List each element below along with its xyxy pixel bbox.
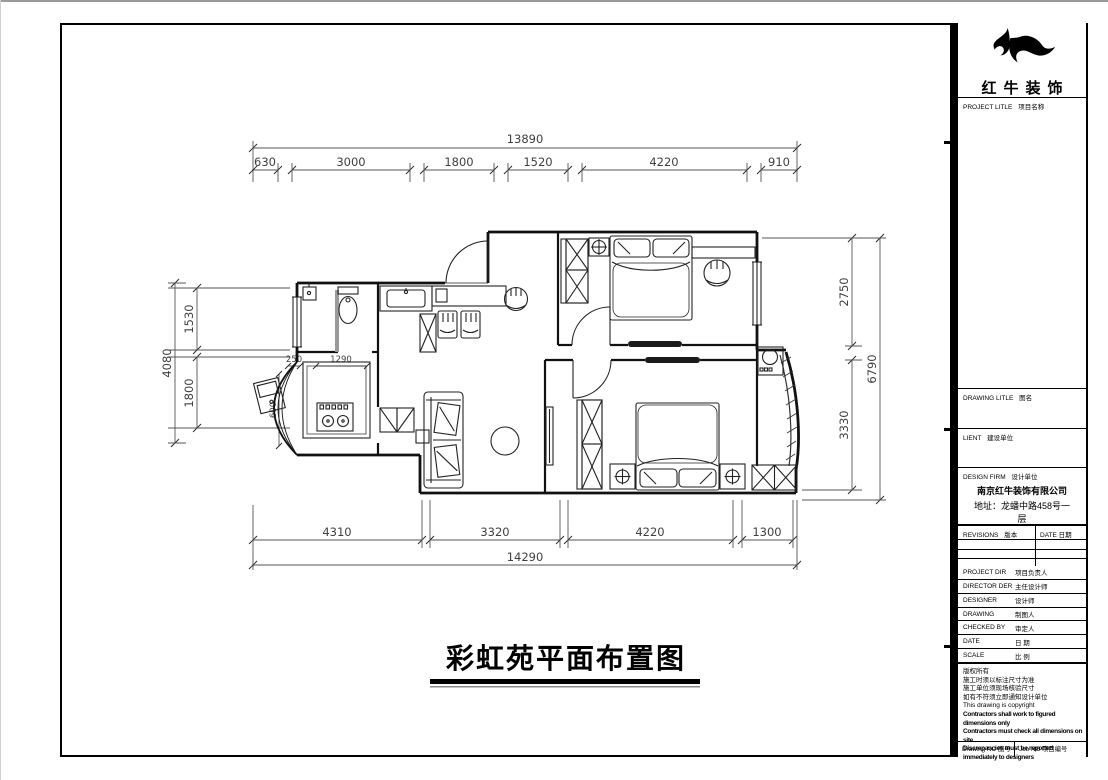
staff-label-cn: 制图人 xyxy=(1015,609,1035,619)
tv-panel xyxy=(546,407,553,465)
dim-right-seg: 3330 xyxy=(837,410,851,439)
dimension-labels: 13890 630 3000 1800 1520 4220 910 4310 3… xyxy=(160,132,879,564)
kitchen-counter xyxy=(303,362,370,438)
desk-and-chair xyxy=(692,247,755,286)
staff-label-cn: 设计师 xyxy=(1015,595,1035,605)
staff-rows-section: PROJECT DIR 项目负责人 DIRECTOR DER 主任设计师 DES… xyxy=(958,566,1086,662)
note-line: 版权所有 xyxy=(963,668,1084,677)
dim-left-overall: 4080 xyxy=(160,348,174,377)
round-table xyxy=(491,427,519,455)
job-no-label-en: Job NO xyxy=(1019,746,1040,753)
dim-inner-offset: 250 xyxy=(286,355,302,365)
ceiling-lamp-symbol xyxy=(589,238,609,256)
note-line: 如有不符须立即通知设计单位 xyxy=(963,694,1084,703)
dim-top-seg: 3000 xyxy=(336,155,365,169)
drawing-no-label-en: Drawing NO xyxy=(962,746,996,753)
staff-label-en: DRAWING xyxy=(958,611,1015,618)
dim-left-seg: 1800 xyxy=(182,378,196,407)
dim-top-overall: 13890 xyxy=(507,132,544,146)
staff-row: DESIGNER 设计师 xyxy=(958,593,1086,607)
red-bull-logo-icon xyxy=(986,26,1058,76)
staff-label-cn: 主任设计师 xyxy=(1015,581,1048,591)
dim-left-seg: 1530 xyxy=(182,304,196,333)
dim-right-overall: 6790 xyxy=(865,354,879,383)
staff-row: DIRECTOR DER 主任设计师 xyxy=(958,579,1086,593)
note-line: 施工单位须现场核验尺寸 xyxy=(963,685,1084,694)
project-label-en: PROJECT LITLE xyxy=(963,104,1012,111)
dining-set xyxy=(432,286,528,338)
drawing-label-en: DRAWING LITLE xyxy=(963,395,1013,402)
revisions-section: REVISIONS 版本 DATE 日期 xyxy=(958,524,1086,566)
dim-inner-counter: 1290 xyxy=(330,355,352,365)
nightstand xyxy=(720,464,745,489)
revisions-row-line xyxy=(958,539,1086,540)
staff-label-cn: 日 期 xyxy=(1015,637,1030,647)
staff-label-cn: 比 例 xyxy=(1015,651,1030,661)
bathroom-fixtures xyxy=(303,283,358,324)
staff-label-en: DESIGNER xyxy=(958,597,1015,604)
revisions-row-line xyxy=(958,558,1086,559)
drawing-label-cn: 图名 xyxy=(1019,395,1032,402)
copyright-notes: 版权所有 施工时须以标注尺寸为准 施工单位须现场核验尺寸 如有不符须立即通知设计… xyxy=(958,662,1086,741)
dining-chair xyxy=(461,311,480,338)
bar-stool xyxy=(505,288,528,311)
dim-bottom-seg: 1300 xyxy=(752,525,781,539)
rev-date-label-cn: 日期 xyxy=(1059,532,1072,539)
staff-label-cn: 项目负责人 xyxy=(1015,567,1048,577)
washbasin xyxy=(380,286,432,311)
dim-bottom-overall: 14290 xyxy=(507,550,544,564)
staff-row: PROJECT DIR 项目负责人 xyxy=(958,566,1086,579)
dim-bottom-seg: 3320 xyxy=(480,525,509,539)
brand-name: 红牛装饰 xyxy=(958,81,1086,97)
staff-label-cn: 审定人 xyxy=(1015,623,1035,633)
staff-row: DRAWING 制图人 xyxy=(958,607,1086,621)
stove xyxy=(317,403,353,431)
note-line: This drawing is copyright xyxy=(963,702,1084,711)
title-underline-shadow xyxy=(430,686,700,688)
staff-label-en: DIRECTOR DER xyxy=(958,583,1015,590)
company-address: 地址：龙蟠中路458号一 xyxy=(958,499,1086,512)
rev-date-label-en: DATE xyxy=(1040,532,1057,539)
client-label-cn: 建设单位 xyxy=(987,435,1013,442)
balcony-closet xyxy=(752,465,797,490)
company-name: 南京红牛装饰有限公司 xyxy=(958,484,1086,497)
dim-top-seg: 1800 xyxy=(444,155,473,169)
logo-section: 红牛装饰 xyxy=(958,23,1086,97)
job-no-label-cn: 项目编号 xyxy=(1042,746,1067,753)
bed-double xyxy=(636,403,719,490)
dim-bottom-seg: 4310 xyxy=(322,525,351,539)
revisions-row-line xyxy=(958,549,1086,550)
bedroom1-wardrobe xyxy=(561,239,588,303)
revisions-label-en: REVISIONS xyxy=(963,532,998,539)
project-title-section: PROJECT LITLE 项目名称 xyxy=(958,97,1086,388)
project-label-cn: 项目名称 xyxy=(1018,104,1044,111)
column-hatch xyxy=(420,314,436,352)
staff-row: DATE 日 期 xyxy=(958,634,1086,648)
client-section: LIENT 建设单位 xyxy=(958,428,1086,467)
dim-top-seg: 910 xyxy=(768,155,790,169)
staff-row: CHECKED BY 审定人 xyxy=(958,620,1086,634)
sofa xyxy=(424,392,463,488)
plan-title: 彩虹苑平面布置图 xyxy=(430,643,700,688)
plan-title-text: 彩虹苑平面布置图 xyxy=(446,643,686,674)
firm-label-en: DESIGN FIRM xyxy=(963,474,1006,481)
walls-outer xyxy=(297,232,799,493)
drawing-sheet: 13890 630 3000 1800 1520 4220 910 4310 3… xyxy=(0,0,1108,780)
staff-label-en: CHECKED BY xyxy=(958,624,1015,631)
bed-double xyxy=(610,236,692,320)
dimension-chains xyxy=(168,141,886,570)
drawing-number-section: Drawing NO 图号 Job NO 项目编号 xyxy=(958,741,1086,757)
staff-label-en: DATE xyxy=(958,638,1015,645)
nightstand xyxy=(610,464,635,489)
title-block: 红牛装饰 PROJECT LITLE 项目名称 DRAWING LITLE 图名… xyxy=(958,23,1088,757)
design-firm-section: DESIGN FIRM 设计单位 南京红牛装饰有限公司 地址：龙蟠中路458号一… xyxy=(958,467,1086,524)
revisions-label-cn: 版本 xyxy=(1004,532,1017,539)
note-line: Contractors shall work to figured dimens… xyxy=(963,711,1084,728)
dim-top-seg: 4220 xyxy=(649,155,678,169)
title-underline xyxy=(430,679,700,684)
drawing-title-section: DRAWING LITLE 图名 xyxy=(958,388,1086,428)
hall-cabinets xyxy=(380,408,429,443)
dim-right-seg: 2750 xyxy=(837,277,851,306)
dim-top-seg: 1520 xyxy=(523,155,552,169)
staff-label-en: SCALE xyxy=(958,652,1015,659)
drawing-no-label-cn: 图号 xyxy=(998,746,1011,753)
dim-bottom-seg: 4220 xyxy=(635,525,664,539)
dining-chair xyxy=(438,311,457,338)
floor-plan-drawing: 13890 630 3000 1800 1520 4220 910 4310 3… xyxy=(0,0,1108,780)
revisions-divider xyxy=(1035,526,1036,566)
dim-top-seg: 630 xyxy=(254,155,276,169)
firm-label-cn: 设计单位 xyxy=(1011,474,1037,481)
note-line: 施工时须以标注尺寸为准 xyxy=(963,677,1084,686)
staff-label-en: PROJECT DIR xyxy=(958,569,1015,576)
client-label-en: LIENT xyxy=(963,435,981,442)
bedroom2-wardrobe xyxy=(577,400,602,489)
staff-row: SCALE 比 例 xyxy=(958,648,1086,662)
